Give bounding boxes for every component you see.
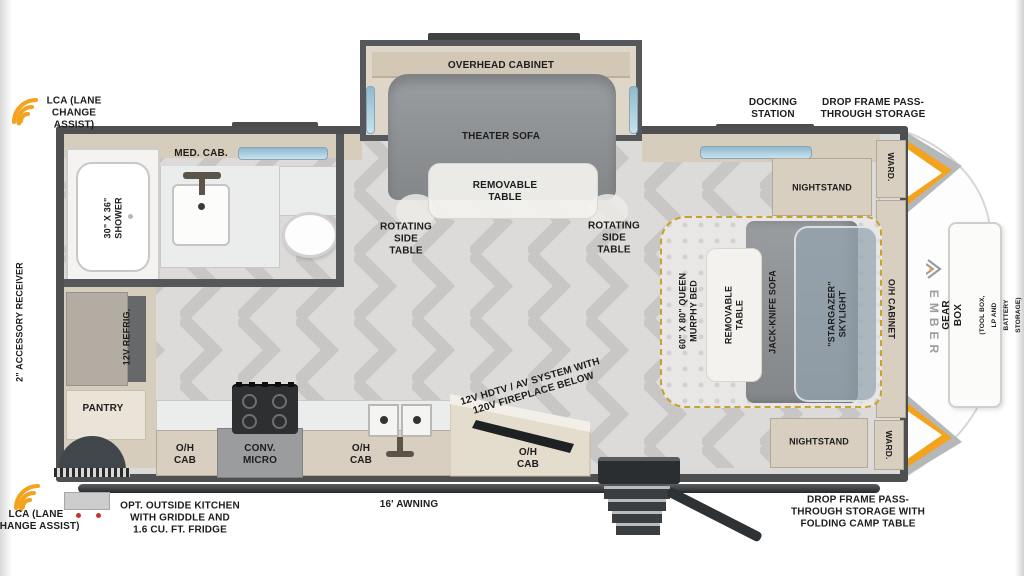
awning-label: 16' AWNING <box>380 499 439 511</box>
oh-cab-left-label: O/H CAB <box>174 443 196 467</box>
stargazer-label: "STARGAZER" SKYLIGHT <box>826 281 847 347</box>
burner <box>242 394 257 409</box>
lca-top-label: LCA (LANE CHANGE ASSIST) <box>47 95 102 130</box>
fridge <box>66 292 128 386</box>
kitchen-faucet-bar <box>386 451 414 457</box>
frame-edge-right <box>1015 0 1024 576</box>
murphy-bed-label: 60" X 80" QUEEN MURPHY BED <box>677 273 698 349</box>
awning-bar <box>78 484 880 493</box>
stove-knobs <box>236 382 294 387</box>
outside-kitchen-label: OPT. OUTSIDE KITCHEN WITH GRIDDLE AND 1.… <box>120 500 240 535</box>
sink-drain-right <box>413 416 421 424</box>
slideout-window-left <box>366 86 375 134</box>
bath-wall-right <box>336 134 344 284</box>
shower-drain <box>128 214 133 219</box>
slideout-window-right <box>629 86 638 134</box>
drop-frame-bottom-label: DROP FRAME PASS- THROUGH STORAGE WITH FO… <box>791 494 925 529</box>
med-cab-label: MED. CAB. <box>174 148 228 160</box>
brand-mark: EMBER <box>922 252 948 372</box>
bath-wall-bottom <box>64 279 344 287</box>
lca-signal-icon-top <box>6 88 44 128</box>
bath-sink-drain <box>198 203 205 210</box>
nightstand-bottom-label: NIGHTSTAND <box>789 437 849 448</box>
sink-drain-left <box>380 416 388 424</box>
burner <box>272 394 287 409</box>
accessory-receiver-label: 2" ACCESSORY RECEIVER <box>15 262 26 382</box>
conv-micro-label: CONV. MICRO <box>243 443 277 467</box>
floorplan-diagram: GEAR BOX (TOOL BOX, LP AND BATTERY STORA… <box>0 0 1024 576</box>
outside-kitchen-griddle <box>64 492 110 510</box>
burner <box>242 414 257 429</box>
shower-label: 30" X 36" SHOWER <box>102 197 123 238</box>
pantry-label: PANTRY <box>83 403 124 415</box>
griddle-knob <box>96 513 101 518</box>
rotating-table-left-label: ROTATING SIDE TABLE <box>380 221 432 256</box>
bath-window <box>238 147 328 160</box>
toilet <box>282 212 338 258</box>
outside-kitchen-hatch <box>54 468 130 477</box>
oh-cab-mid-label: O/H CAB <box>350 443 372 467</box>
rotating-table-right-label: ROTATING SIDE TABLE <box>588 220 640 255</box>
removable-table-front-label: REMOVABLE TABLE <box>473 180 538 204</box>
lca-signal-icon-bottom <box>8 474 46 514</box>
lca-bottom-label: LCA (LANE CHANGE ASSIST) <box>0 509 80 533</box>
jack-knife-sofa-label: JACK-KNIFE SOFA <box>768 270 779 354</box>
step-rail <box>666 487 763 543</box>
ward-top-label: WARD. <box>886 152 896 181</box>
overhead-cabinet-label: OVERHEAD CABINET <box>448 60 554 72</box>
refrig-label: 12V REFRIG. <box>122 309 133 366</box>
drop-frame-top-label: DROP FRAME PASS- THROUGH STORAGE <box>821 97 926 121</box>
stove <box>232 386 298 434</box>
oh-cab-right-label: O/H CAB <box>517 447 539 471</box>
ember-logo-icon <box>926 258 944 280</box>
oh-cabinet-right-label: O/H CABINET <box>886 279 897 339</box>
theater-sofa-label: THEATER SOFA <box>462 131 540 143</box>
burner <box>272 414 287 429</box>
removable-table-bed-label: REMOVABLE TABLE <box>723 286 744 344</box>
docking-station-label: DOCKING STATION <box>749 97 797 121</box>
entry-platform <box>598 457 680 484</box>
bath-faucet-stem <box>199 178 205 195</box>
brand-text: EMBER <box>927 290 941 358</box>
gear-box-sub: (TOOL BOX, LP AND BATTERY STORAGE) <box>979 295 1021 334</box>
ward-bottom-label: WARD. <box>884 430 894 459</box>
pantry <box>66 390 146 440</box>
nightstand-top-label: NIGHTSTAND <box>792 183 852 194</box>
